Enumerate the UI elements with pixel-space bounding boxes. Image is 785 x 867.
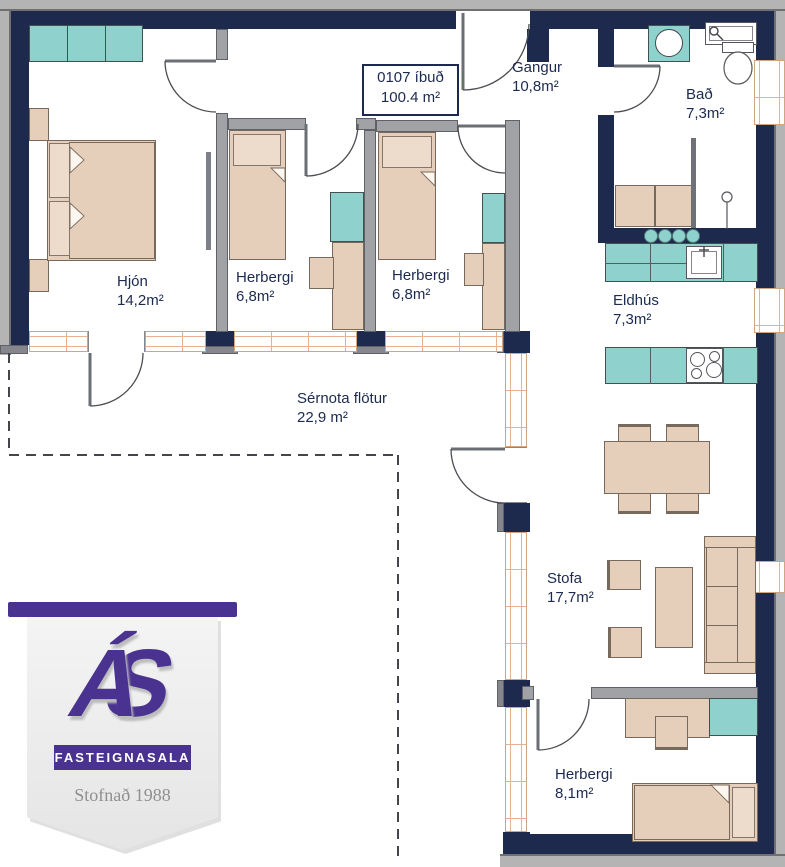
window-glazing — [146, 336, 205, 347]
shower-head — [722, 192, 732, 229]
wall-corner-2 — [503, 832, 530, 854]
bath-sink-basin — [709, 26, 753, 41]
toilet-tank — [722, 42, 754, 53]
logo-monogram: Á S — [27, 628, 218, 740]
window-west-1 — [505, 353, 527, 447]
room-name: Hjón — [117, 273, 148, 290]
wall-herbergi2-corridor — [505, 120, 520, 332]
window-glazing — [759, 562, 780, 592]
apartment-area: 100.4 m² — [381, 89, 440, 106]
room-label-sernota: Sérnota flötur 22,9 m² — [297, 389, 387, 427]
sofa-seat — [706, 625, 738, 664]
wardrobe-hjon — [29, 25, 143, 62]
tv-hjon — [206, 152, 211, 250]
room-area: 7,3m² — [686, 105, 724, 122]
room-label-herbergi3: Herbergi 8,1m² — [555, 765, 613, 803]
wall-herbergi2-top — [376, 120, 458, 132]
room-area: 6,8m² — [392, 286, 430, 303]
room-area: 6,8m² — [236, 288, 274, 305]
apartment-id: 0107 íbuð — [377, 69, 444, 86]
window-west-3 — [505, 707, 527, 832]
counter-divider — [723, 347, 724, 384]
door-opening-stofa-terrace — [505, 447, 527, 503]
exterior-wall-right-4 — [756, 593, 774, 854]
wall-herbergi1-herbergi2 — [364, 130, 376, 332]
wall-end-cap — [497, 503, 504, 532]
nightstand-hjon-2 — [29, 259, 49, 292]
window-glazing — [30, 336, 87, 347]
window-glazing — [510, 533, 522, 679]
room-name: Herbergi — [236, 269, 294, 286]
pillow-herbergi3 — [732, 787, 755, 838]
window-west-2 — [505, 532, 527, 680]
sofa-armrest — [704, 536, 756, 548]
room-area: 8,1m² — [555, 785, 593, 802]
door-arc-stofa-terrace — [451, 449, 505, 503]
sofa-back — [736, 547, 756, 663]
door-arc-herbergi1 — [306, 124, 358, 176]
wall-herbergi1-top-right — [356, 118, 376, 130]
wall-end-cap — [202, 346, 238, 354]
shower-tray-2 — [655, 185, 695, 227]
floor-plan: Hjón 14,2m² Herbergi 6,8m² Herbergi 6,8m… — [0, 0, 785, 867]
wall-herbergi1-top — [228, 118, 306, 130]
sofa-armrest — [704, 662, 756, 674]
wall-hjon-lower — [216, 113, 228, 332]
pillow-hjon-2 — [49, 201, 70, 256]
room-area: 7,3m² — [613, 311, 651, 328]
room-name: Bað — [686, 86, 713, 103]
window-south-3 — [234, 331, 357, 352]
bath-wall-left-lower — [598, 115, 614, 230]
room-name: Eldhús — [613, 292, 659, 309]
room-area: 17,7m² — [547, 589, 594, 606]
door-arc-bad — [614, 66, 660, 112]
room-name: Gangur — [512, 59, 562, 76]
exterior-wall-left — [11, 11, 29, 345]
wall-dot-4 — [686, 229, 700, 243]
counter-drawer-line — [605, 263, 686, 264]
desk-herbergi1 — [332, 242, 364, 330]
wall-dot-2 — [658, 229, 672, 243]
door-arc-hjon-terrace — [90, 353, 143, 406]
logo-company-label: FASTEIGNASALA — [54, 745, 191, 770]
window-glazing — [510, 354, 522, 446]
stool-1 — [607, 560, 641, 590]
window-east-stofa — [754, 561, 785, 593]
door-arc-herbergi3 — [538, 699, 589, 750]
chair-herbergi1 — [309, 257, 334, 289]
outer-band-left — [0, 11, 11, 355]
wall-dot-3 — [672, 229, 686, 243]
wall-end-cap — [497, 680, 504, 707]
logo-ribbon-bar — [8, 602, 237, 617]
room-area: 14,2m² — [117, 292, 164, 309]
window-east-kitchen — [754, 288, 785, 333]
stove-burner — [706, 362, 722, 378]
pillow-hjon-1 — [49, 143, 70, 198]
counter-divider — [723, 243, 724, 282]
wall-end-cap — [522, 686, 534, 700]
wall-corner-1 — [503, 331, 530, 353]
duvet-hjon — [69, 142, 155, 259]
washing-machine-drum — [655, 29, 683, 57]
window-glazing — [235, 336, 356, 347]
wardrobe-herbergi1 — [330, 192, 364, 242]
room-label-gangur: Gangur 10,8m² — [512, 58, 562, 96]
window-glazing — [510, 708, 522, 831]
room-label-hjon: Hjón 14,2m² — [117, 272, 164, 310]
wall-end-cap — [0, 345, 28, 354]
door-arc-herbergi2 — [458, 126, 505, 173]
stool-2 — [608, 627, 642, 658]
stove-burner — [709, 351, 720, 362]
apartment-id-box: 0107 íbuð 100.4 m² — [362, 64, 459, 116]
wall-hjon-upper — [216, 29, 228, 60]
exterior-wall-right-1 — [756, 11, 774, 60]
logo-tagline: Stofnað 1988 — [47, 785, 198, 806]
window-glazing — [759, 289, 780, 332]
window-south-1 — [29, 331, 88, 352]
desk-herbergi2 — [482, 243, 505, 330]
wall-end-cap — [353, 346, 389, 354]
room-area: 22,9 m² — [297, 409, 348, 426]
wall-dot-1 — [644, 229, 658, 243]
mattress-herbergi3 — [634, 785, 730, 840]
kitchen-sink-basin — [691, 251, 717, 274]
room-name: Stofa — [547, 570, 582, 587]
pillow-herbergi2 — [382, 136, 432, 168]
window-east-bath — [754, 60, 785, 125]
bath-wall-left-upper — [598, 29, 614, 67]
room-label-eldhus: Eldhús 7,3m² — [613, 291, 659, 329]
window-glazing — [759, 61, 780, 124]
outer-band-bottom — [500, 854, 785, 867]
chair-herbergi2 — [464, 253, 484, 286]
toilet-bowl — [724, 52, 752, 84]
room-name: Herbergi — [555, 766, 613, 783]
door-opening-hjon-terrace — [88, 331, 145, 352]
room-label-bad: Bað 7,3m² — [686, 85, 724, 123]
exterior-wall-right-2 — [756, 125, 774, 288]
wardrobe-herbergi3 — [709, 698, 758, 736]
exterior-wall-right-3 — [756, 333, 774, 561]
coffee-table — [655, 567, 693, 648]
kitchen-counter-bottom — [605, 347, 758, 384]
sofa-seat — [706, 586, 738, 626]
room-label-herbergi2: Herbergi 6,8m² — [392, 266, 450, 304]
outer-band-top — [0, 0, 785, 11]
outer-band-right — [774, 11, 785, 858]
wardrobe-herbergi2 — [482, 193, 505, 243]
nightstand-hjon-1 — [29, 108, 49, 141]
stove-burner — [690, 352, 705, 367]
counter-divider — [650, 347, 651, 384]
sofa-seat — [706, 547, 738, 587]
room-name: Herbergi — [392, 267, 450, 284]
window-glazing — [386, 336, 502, 347]
pillow-herbergi1 — [233, 134, 281, 166]
wall-stub-3 — [503, 503, 530, 532]
chair-herbergi3 — [655, 716, 688, 750]
window-south-2 — [145, 331, 206, 352]
room-label-herbergi1: Herbergi 6,8m² — [236, 268, 294, 306]
door-arc-hjon — [165, 61, 216, 112]
shower-tray-1 — [615, 185, 655, 227]
room-area: 10,8m² — [512, 78, 559, 95]
window-south-4 — [385, 331, 503, 352]
dining-table — [604, 441, 710, 494]
room-name: Sérnota flötur — [297, 390, 387, 407]
stove-burner — [691, 368, 702, 379]
shower-glass — [691, 138, 696, 228]
room-label-stofa: Stofa 17,7m² — [547, 569, 594, 607]
